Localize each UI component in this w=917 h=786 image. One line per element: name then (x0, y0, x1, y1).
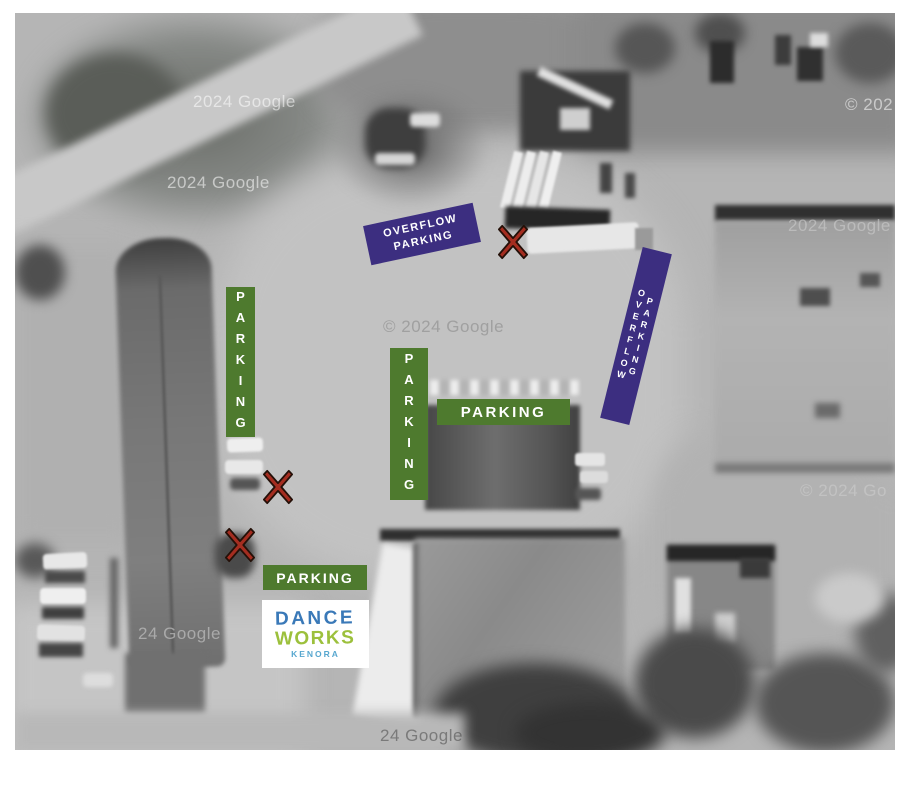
parking-sign-horizontal-upper: PARKING (437, 399, 570, 425)
closed-x-marker (498, 224, 528, 260)
roof-vent (860, 273, 880, 287)
parking-sign-horizontal-lower: PARKING (263, 565, 367, 590)
vehicle (710, 41, 734, 83)
google-attribution: 2024 Google (788, 216, 891, 236)
vehicle (675, 578, 691, 633)
roof-edge (715, 463, 895, 473)
vehicle-shadow (42, 607, 84, 619)
vehicle (37, 624, 86, 642)
vehicle (43, 552, 88, 570)
vehicle (600, 163, 612, 193)
vehicle (775, 35, 791, 65)
tree-cluster (15, 245, 65, 300)
parking-label: PARKING (402, 351, 417, 498)
roof-seam (413, 543, 419, 718)
vehicle-shadow (45, 571, 85, 583)
vehicle (797, 47, 823, 81)
roof-vent (800, 288, 830, 306)
google-attribution: 24 Google (380, 726, 463, 746)
vehicle-shadow (575, 488, 601, 500)
parking-sign-vertical-mid: PARKING (390, 348, 428, 500)
logo-text-works: WORKS (275, 628, 356, 649)
google-attribution: 24 Google (138, 624, 221, 644)
closed-x-marker (263, 469, 293, 505)
vehicle (225, 460, 263, 474)
vehicle (227, 437, 263, 452)
vehicle (83, 673, 113, 687)
google-attribution: © 2024 Go (800, 481, 887, 501)
vehicle (575, 453, 605, 466)
vehicle-shadow (39, 643, 83, 657)
danceworks-logo: DANCE WORKS KENORA (262, 600, 369, 668)
parking-label: PARKING (276, 570, 354, 586)
parking-label: PARKING (461, 404, 547, 421)
logo-text-kenora: KENORA (291, 650, 340, 659)
parking-label: PARKING (233, 289, 248, 436)
equipment (375, 153, 415, 165)
vehicle (580, 471, 608, 483)
building-roof (715, 221, 895, 466)
equipment (410, 113, 440, 127)
pole-shadow (110, 558, 118, 648)
parking-sign-vertical-left: PARKING (226, 287, 255, 437)
logo-text-dance: DANCE (275, 608, 355, 629)
roof-vent (740, 558, 770, 578)
vehicle-shadow (230, 478, 260, 490)
google-attribution: 2024 Google (167, 173, 270, 193)
roof-highlight (560, 108, 590, 130)
closed-x-marker (225, 527, 255, 563)
vehicle (40, 588, 86, 604)
open-ground (815, 573, 885, 623)
tree-cluster (615, 23, 675, 73)
vehicle (625, 173, 635, 198)
google-attribution: © 2024 Google (383, 317, 504, 337)
roof-vent (815, 403, 840, 418)
page: 2024 Google 2024 Google © 2024 Google © … (0, 0, 917, 786)
google-attribution: 2024 Google (193, 92, 296, 112)
car-row (430, 380, 580, 395)
building-annex (125, 653, 205, 713)
google-attribution: © 202 (845, 95, 893, 115)
vehicle (810, 33, 828, 47)
aerial-photo: 2024 Google 2024 Google © 2024 Google © … (15, 13, 895, 750)
